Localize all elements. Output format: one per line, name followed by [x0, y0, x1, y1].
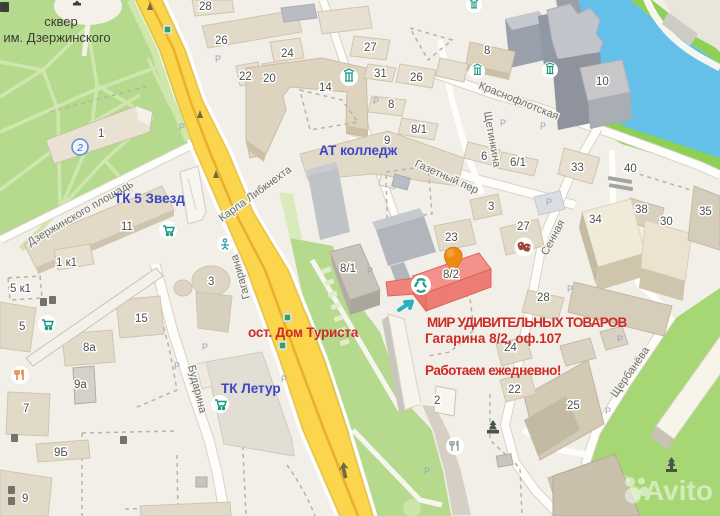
- svg-text:30: 30: [660, 216, 673, 228]
- svg-text:2: 2: [76, 143, 83, 154]
- svg-text:Гагарина 8/2, оф.107: Гагарина 8/2, оф.107: [425, 331, 562, 346]
- svg-text:8/1: 8/1: [411, 124, 427, 136]
- svg-text:3: 3: [488, 201, 494, 213]
- svg-text:1: 1: [98, 128, 104, 140]
- svg-text:10: 10: [596, 76, 609, 88]
- svg-text:23: 23: [445, 232, 458, 244]
- svg-text:P: P: [174, 361, 180, 371]
- svg-text:2: 2: [434, 395, 440, 407]
- svg-text:P: P: [215, 54, 221, 64]
- svg-text:28: 28: [537, 292, 550, 304]
- svg-text:31: 31: [374, 68, 387, 80]
- svg-text:P: P: [179, 122, 185, 132]
- svg-text:МИР УДИВИТЕЛЬНЫХ ТОВАРОВ: МИР УДИВИТЕЛЬНЫХ ТОВАРОВ: [427, 315, 628, 330]
- svg-text:8а: 8а: [83, 342, 96, 354]
- svg-text:P: P: [605, 406, 611, 416]
- svg-text:9Б: 9Б: [54, 447, 68, 459]
- svg-text:5: 5: [19, 321, 25, 333]
- svg-text:26: 26: [215, 35, 228, 47]
- svg-text:P: P: [202, 342, 208, 352]
- svg-text:20: 20: [263, 73, 276, 85]
- svg-text:P: P: [281, 374, 287, 384]
- svg-text:им. Дзержинского: им. Дзержинского: [3, 30, 110, 45]
- svg-text:24: 24: [281, 48, 294, 60]
- svg-text:P: P: [546, 197, 552, 207]
- svg-text:7: 7: [23, 403, 29, 415]
- svg-text:P: P: [500, 118, 506, 128]
- svg-text:ост. Дом Туриста: ост. Дом Туриста: [248, 325, 359, 340]
- svg-text:АТ колледж: АТ колледж: [319, 143, 398, 158]
- svg-text:22: 22: [508, 384, 521, 396]
- svg-text:сквер: сквер: [44, 14, 77, 29]
- svg-text:P: P: [540, 121, 546, 131]
- svg-text:Работаем ежедневно!: Работаем ежедневно!: [425, 363, 561, 378]
- svg-text:8/1: 8/1: [340, 263, 356, 275]
- svg-text:27: 27: [364, 42, 377, 54]
- svg-text:P: P: [567, 284, 573, 294]
- svg-text:33: 33: [571, 162, 584, 174]
- svg-text:8/2: 8/2: [443, 269, 459, 281]
- svg-text:34: 34: [589, 214, 602, 226]
- svg-text:6: 6: [481, 151, 487, 163]
- svg-text:P: P: [367, 266, 373, 276]
- svg-text:9: 9: [22, 493, 28, 505]
- svg-text:14: 14: [319, 82, 332, 94]
- svg-text:27: 27: [517, 221, 530, 233]
- svg-text:22: 22: [239, 71, 252, 83]
- svg-text:P: P: [617, 334, 623, 344]
- svg-text:38: 38: [635, 204, 648, 216]
- svg-text:15: 15: [135, 313, 148, 325]
- svg-text:35: 35: [699, 206, 712, 218]
- svg-text:28: 28: [199, 1, 212, 13]
- svg-text:P: P: [424, 466, 430, 476]
- svg-text:3: 3: [208, 276, 214, 288]
- svg-text:8: 8: [484, 45, 490, 57]
- svg-text:25: 25: [567, 400, 580, 412]
- svg-text:26: 26: [410, 72, 423, 84]
- svg-text:Avito: Avito: [644, 475, 713, 506]
- svg-text:9а: 9а: [74, 379, 87, 391]
- svg-text:8: 8: [388, 99, 394, 111]
- svg-text:11: 11: [121, 221, 133, 233]
- svg-text:ТК 5 Звезд: ТК 5 Звезд: [114, 191, 185, 206]
- svg-text:6/1: 6/1: [510, 157, 526, 169]
- svg-text:ТК Летур: ТК Летур: [221, 381, 281, 396]
- svg-text:P: P: [373, 96, 379, 106]
- svg-text:1 к1: 1 к1: [56, 257, 77, 269]
- svg-text:40: 40: [624, 163, 637, 175]
- svg-text:5 к1: 5 к1: [10, 283, 31, 295]
